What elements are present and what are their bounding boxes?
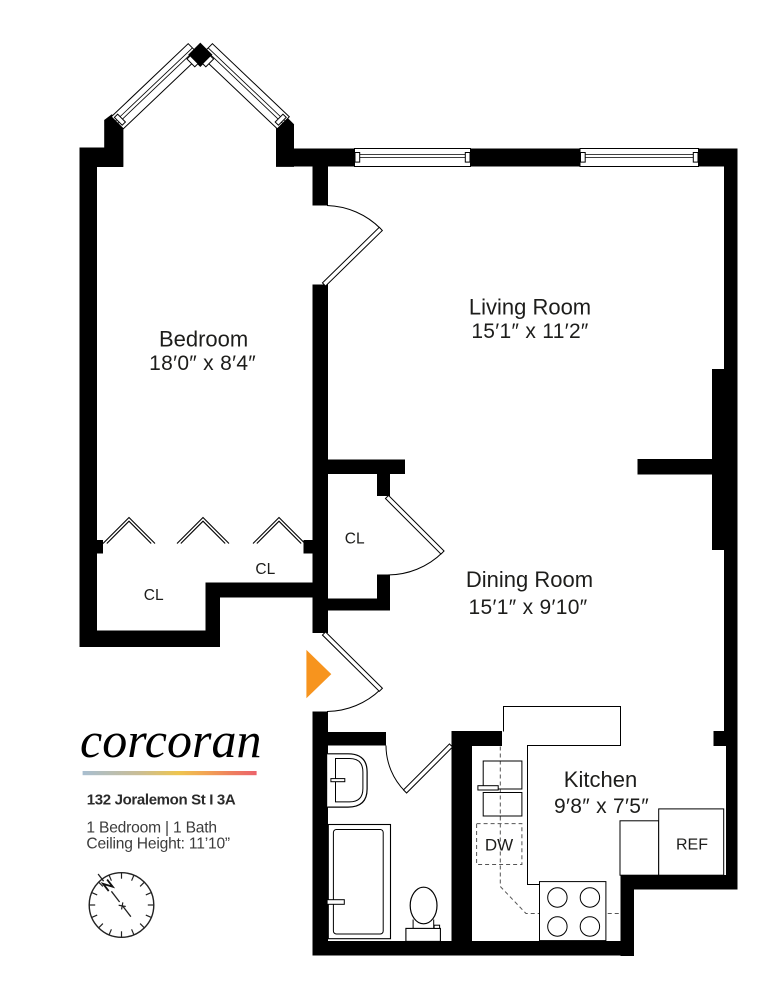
- svg-text:15′1″ x 9′10″: 15′1″ x 9′10″: [469, 596, 588, 619]
- svg-text:9′8″ x 7′5″: 9′8″ x 7′5″: [554, 795, 649, 818]
- svg-text:18′0″ x 8′4″: 18′0″ x 8′4″: [149, 352, 256, 375]
- svg-text:Ceiling Height: 11’10”: Ceiling Height: 11’10”: [86, 836, 230, 853]
- svg-text:132 Joralemon St I 3A: 132 Joralemon St I 3A: [87, 792, 236, 809]
- svg-text:CL: CL: [255, 561, 275, 578]
- svg-text:Kitchen: Kitchen: [564, 767, 637, 792]
- svg-text:CL: CL: [144, 587, 164, 604]
- svg-text:1 Bedroom | 1 Bath: 1 Bedroom | 1 Bath: [86, 819, 216, 836]
- svg-text:corcoran: corcoran: [80, 712, 261, 768]
- svg-text:15′1″ x 11′2″: 15′1″ x 11′2″: [471, 320, 589, 343]
- svg-text:REF: REF: [676, 836, 708, 853]
- svg-text:DW: DW: [485, 836, 513, 855]
- svg-text:Dining Room: Dining Room: [466, 567, 593, 592]
- svg-text:Living Room: Living Room: [469, 295, 591, 320]
- svg-text:Bedroom: Bedroom: [159, 327, 248, 352]
- svg-text:CL: CL: [345, 531, 365, 548]
